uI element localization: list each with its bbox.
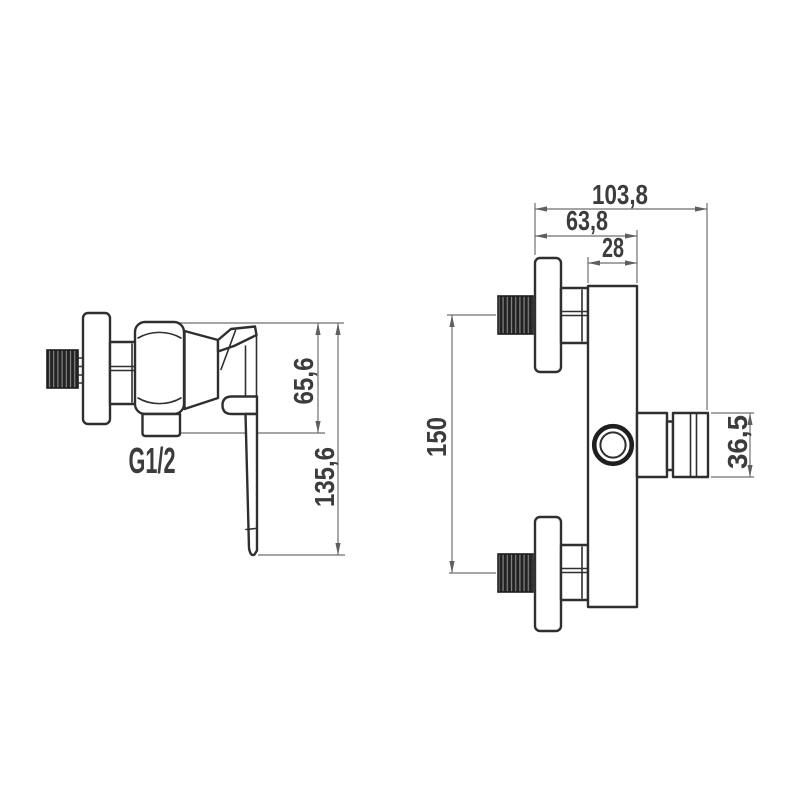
wall-flange-top [535, 258, 561, 372]
dimension-outlet-height-label: 36,5 [722, 415, 753, 469]
arrowhead [625, 233, 637, 238]
cartridge-housing-side [185, 331, 219, 409]
arrowhead [695, 206, 707, 211]
arrowhead [315, 323, 320, 335]
arrowhead [315, 421, 320, 433]
arrowhead [449, 315, 454, 327]
threaded-inlet-bottom [498, 554, 533, 592]
side-view: 65,6 135,6 [47, 313, 345, 555]
arrowhead [625, 260, 637, 265]
threaded-inlet-top [498, 296, 533, 334]
front-view: 103,8 63,8 28 150 36 [421, 179, 754, 631]
outlet-spout-side [143, 414, 181, 436]
thread-size-label: G1/2 [129, 440, 176, 481]
outlet-connector-front [637, 413, 667, 477]
arrowhead [588, 260, 600, 265]
handle-lever-side [246, 414, 258, 555]
arrowhead [535, 206, 547, 211]
dimension-total-height-label: 135,6 [309, 447, 340, 507]
front-view-faucet [498, 258, 708, 631]
technical-drawing-page: 65,6 135,6 [0, 0, 800, 800]
wall-flange-side [83, 313, 110, 424]
handle-cap-side [218, 327, 257, 352]
handle-grip-side [223, 397, 258, 415]
shower-mixer-drawing: 65,6 135,6 [0, 0, 800, 800]
wall-flange-bottom [535, 517, 561, 631]
dimension-body-height-label: 65,6 [288, 358, 319, 405]
dimension-body-width-label: 28 [602, 232, 624, 263]
threaded-inlet-side [47, 350, 78, 388]
arrowhead [335, 543, 340, 555]
arrowhead [449, 561, 454, 573]
arrowhead [335, 323, 340, 335]
connection-nut-side [110, 342, 137, 404]
arrowhead [535, 233, 547, 238]
dimension-inlet-spacing-label: 150 [421, 417, 452, 457]
side-view-faucet [47, 313, 257, 555]
